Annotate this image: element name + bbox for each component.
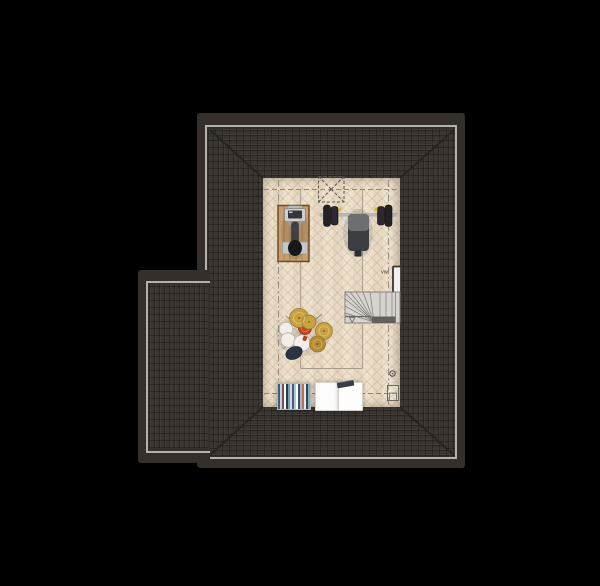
radiator-valve-label: vw: [381, 270, 388, 276]
weight-bench-group: [320, 205, 396, 257]
exercise-bike: [281, 206, 309, 259]
bookshelf: [277, 383, 311, 410]
plan-overlay: vw: [0, 0, 600, 586]
staircase: [345, 292, 400, 323]
stair-landing: [372, 317, 396, 324]
cabinet-left: [315, 382, 339, 411]
drum-kit: [276, 309, 333, 363]
mech-unit: [388, 386, 399, 401]
bike-seat: [288, 240, 302, 256]
bench-foot: [355, 251, 362, 257]
roof-window: [319, 177, 345, 203]
barbell-clip-right: [375, 208, 378, 212]
book-spine: [308, 384, 310, 409]
bench-backrest: [348, 214, 369, 231]
floorplan-stage: vw: [0, 0, 600, 586]
barbell-clip-left: [339, 208, 342, 212]
vent-symbol: [390, 371, 395, 376]
